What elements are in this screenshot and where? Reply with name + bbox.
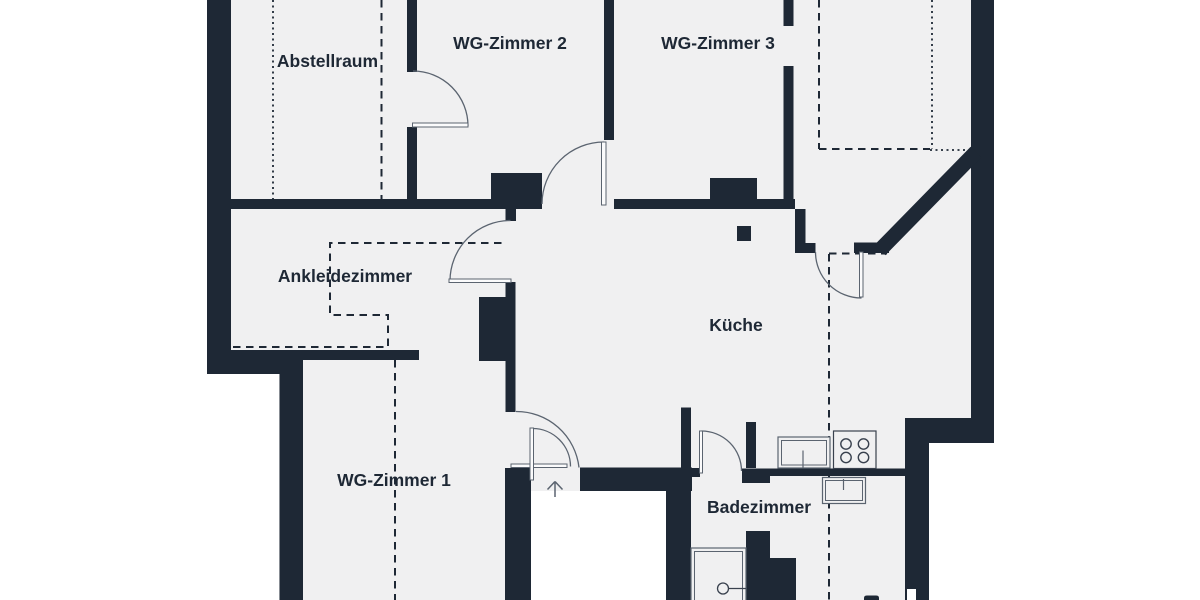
svg-text:Abstellraum: Abstellraum: [277, 51, 378, 71]
svg-text:Küche: Küche: [709, 315, 763, 335]
svg-text:Badezimmer: Badezimmer: [707, 497, 811, 517]
svg-text:Ankleidezimmer: Ankleidezimmer: [278, 266, 412, 286]
svg-text:WG-Zimmer 2: WG-Zimmer 2: [453, 33, 567, 53]
svg-text:WG-Zimmer 3: WG-Zimmer 3: [661, 33, 775, 53]
svg-text:WG-Zimmer 1: WG-Zimmer 1: [337, 470, 451, 490]
